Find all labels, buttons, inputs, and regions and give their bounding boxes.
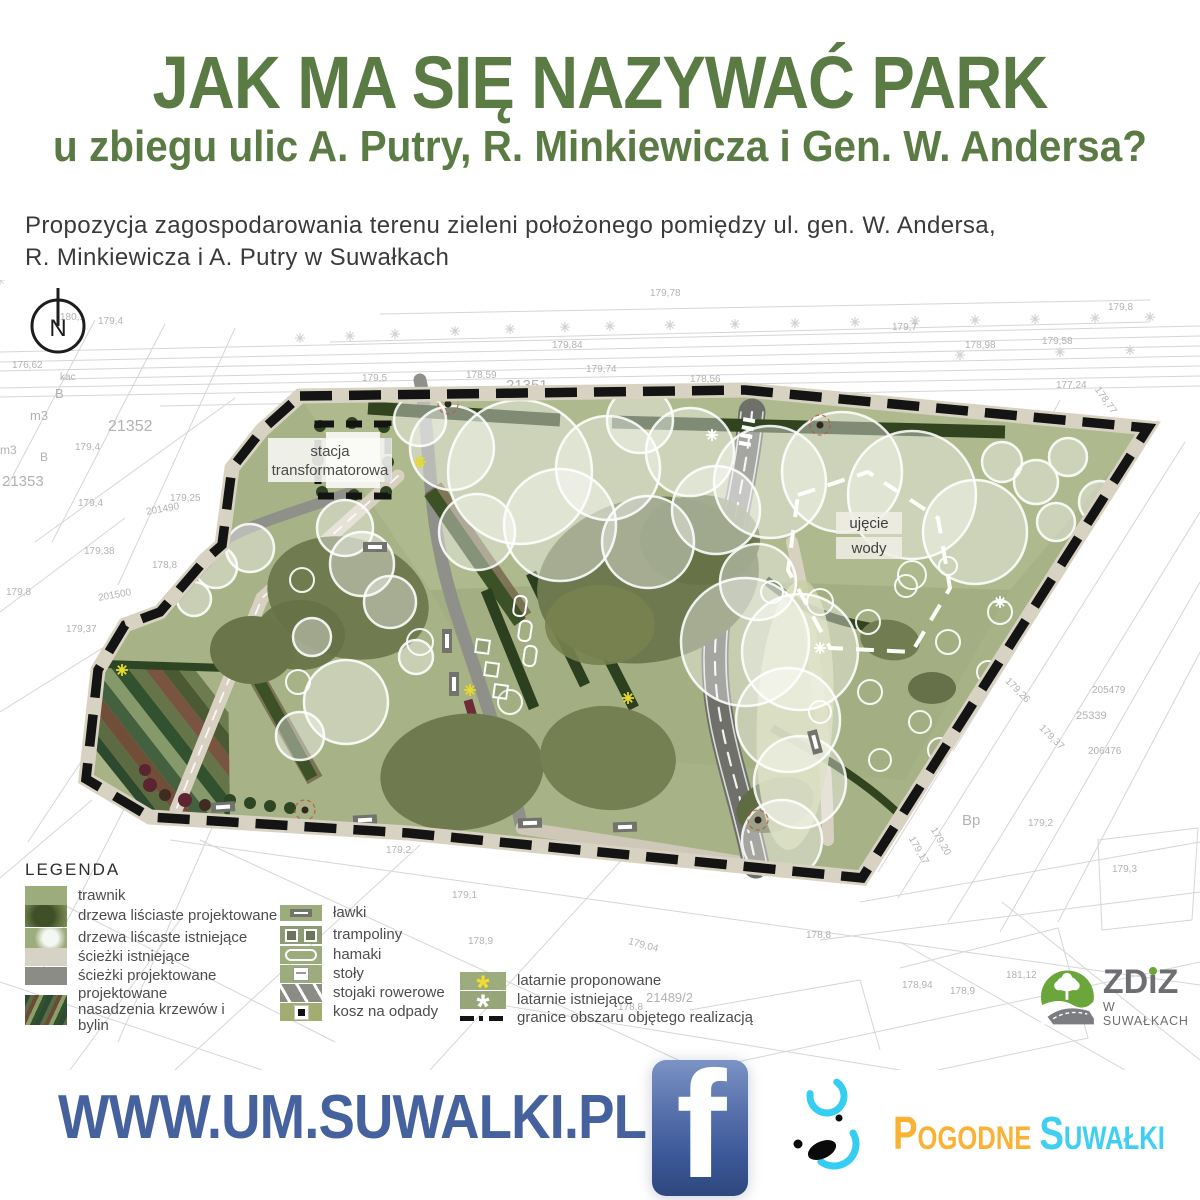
legend-title: LEGENDA [25,860,120,880]
bike-rack-icon [280,984,322,1002]
legend-label: stoły [333,966,364,982]
water-intake-label-line2: wody [850,540,887,557]
legend-row-trawnik: trawnik [25,886,126,906]
paths-proposed-swatch [25,967,67,985]
legend-label: ławki [333,905,366,921]
legend-label: ścieżki projektowane [78,968,216,984]
hammock-icon [280,946,322,964]
boundary-line-icon [460,1016,506,1021]
legend-row-sciezki-projektowane: ścieżki projektowane [25,967,216,985]
legend-row-sciezki-istniejace: ścieżki istniejące [25,948,190,966]
legend-row-latarnie-proponowane: latarnie proponowane [460,972,661,990]
legend-label: hamaki [333,947,381,963]
pogodne-suwalki-wordmark: PogodneSuwałki [893,1106,1165,1160]
page-subtitle: u zbiegu ulic A. Putry, R. Minkiewicza i… [48,122,1152,172]
legend-row-stojaki: stojaki rowerowe [280,984,445,1002]
facebook-letter: f [676,1060,727,1196]
legend-row-hamaki: hamaki [280,946,381,964]
plan-description-line2: R. Minkiewicza i A. Putry w Suwałkach [25,242,996,274]
legend-row-kosz: kosz na odpady [280,1003,438,1021]
legend-row-drzewa-istniejace: drzewa liścaste istniejące [25,928,247,948]
legend-label: drzewa liściaste projektowane [78,908,277,924]
page-title: JAK MA SIĘ NAZYWAĆ PARK [72,40,1128,125]
poster-page: JAK MA SIĘ NAZYWAĆ PARK u zbiegu ulic A.… [0,0,1200,1200]
trees-existing-swatch [25,928,67,948]
zdiz-subtitle: W SUWAŁKACH [1103,1000,1200,1028]
legend-row-stoly: stoły [280,965,364,983]
trampoline-icon [280,926,322,944]
website-url: WWW.UM.SUWALKI.PL [58,1082,646,1153]
lawn-swatch [25,886,67,906]
legend-label: ścieżki istniejące [78,949,190,965]
north-compass-icon: N [26,284,90,358]
zdiz-name: ZDiZ [1103,966,1200,998]
legend-row-trampoliny: trampoliny [280,926,402,944]
legend-label: latarnie istniejące [517,992,633,1008]
table-icon [280,965,322,983]
legend-label: granice obszaru objętego realizacją [517,1010,753,1026]
legend-label: trawnik [78,888,126,904]
plan-description: Propozycja zagospodarowania terenu ziele… [25,210,996,275]
plantings-swatch [25,995,67,1025]
trees-proposed-swatch [25,905,67,927]
pogodne-suwalki-mark-icon [782,1070,872,1182]
bench-icon [280,905,322,921]
compass-north-label: N [49,315,66,342]
plan-description-line1: Propozycja zagospodarowania terenu ziele… [25,210,996,242]
zdiz-logo-icon [1040,968,1095,1026]
legend-label: drzewa liścaste istniejące [78,930,247,946]
station-label-line1: stacja [310,443,350,460]
legend-row-nasadzenia: projektowane nasadzenia krzewów i bylin [25,986,228,1035]
legend-label: latarnie proponowane [517,973,661,989]
legend-row-drzewa-projektowane: drzewa liściaste projektowane [25,905,277,927]
legend-label: stojaki rowerowe [333,985,445,1001]
legend-row-latarnie-istniejace: latarnie istniejące [460,991,633,1009]
legend-row-lawki: ławki [280,905,366,921]
trash-bin-icon [280,1003,322,1021]
station-label-line2: transformatorowa [272,462,389,479]
paths-existing-swatch [25,948,67,966]
pogodne-word: Pogodne [893,1107,1031,1159]
lamp-existing-icon [460,991,506,1009]
suwalki-word: Suwałki [1039,1107,1165,1159]
facebook-icon: f [652,1060,748,1196]
legend-label: kosz na odpady [333,1004,438,1020]
water-intake-label-line1: ujęcie [849,515,888,532]
legend-label: projektowane nasadzenia krzewów i bylin [78,986,228,1035]
legend-row-granice: granice obszaru objętego realizacją [460,1010,753,1026]
legend-label: trampoliny [333,927,402,943]
zdiz-logo: ZDiZ W SUWAŁKACH [1040,966,1200,1028]
